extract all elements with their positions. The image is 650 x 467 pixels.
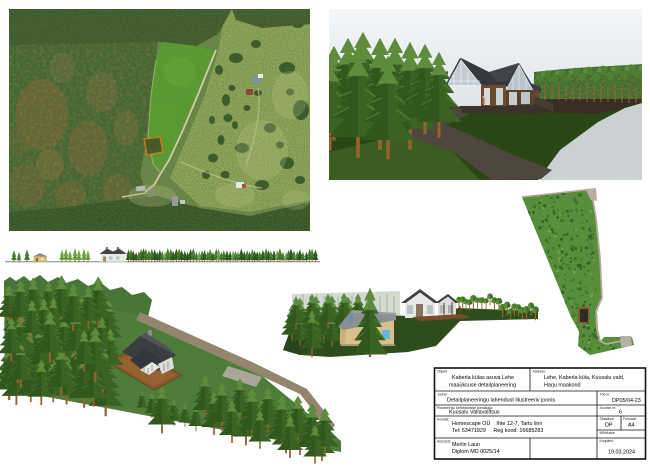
svg-text:Kuusalu Vallavalitsus: Kuusalu Vallavalitsus bbox=[449, 410, 500, 416]
svg-text:Tel: 53471829 Reg kood: 16: Tel: 53471829 Reg kood: 16685283 bbox=[452, 428, 543, 434]
svg-text:Harju maakond: Harju maakond bbox=[544, 383, 581, 389]
svg-text:DP: DP bbox=[605, 423, 613, 429]
svg-text:Mõõtkava:: Mõõtkava: bbox=[600, 431, 616, 435]
svg-text:Autor(id):: Autor(id): bbox=[437, 440, 451, 444]
svg-text:DP05/04-23: DP05/04-23 bbox=[612, 398, 641, 404]
svg-text:Joonis:: Joonis: bbox=[437, 393, 448, 397]
svg-text:Staadium:: Staadium: bbox=[600, 417, 615, 421]
svg-text:Kuupäev:: Kuupäev: bbox=[600, 439, 614, 443]
svg-text:Aadress:: Aadress: bbox=[533, 370, 546, 374]
svg-text:6: 6 bbox=[619, 410, 622, 416]
svg-text:Formaat:: Formaat: bbox=[623, 417, 637, 421]
svg-text:19.03.2024: 19.03.2024 bbox=[608, 450, 635, 456]
svg-text:Kaberla külas asuva Lehe: Kaberla külas asuva Lehe bbox=[452, 375, 514, 381]
svg-text:Detailplaneeringu lahendust il: Detailplaneeringu lahendust illustreeriv… bbox=[447, 398, 555, 404]
svg-text:A4: A4 bbox=[628, 423, 635, 429]
svg-text:Merlin Laun: Merlin Laun bbox=[452, 442, 480, 448]
svg-text:Töö nr:: Töö nr: bbox=[600, 393, 611, 397]
svg-text:Joonise nr:: Joonise nr: bbox=[600, 406, 617, 410]
svg-text:Diplom MD 0025/14: Diplom MD 0025/14 bbox=[452, 449, 500, 455]
svg-text:Homescape OÜ Ihte 12-7, Tar: Homescape OÜ Ihte 12-7, Tartu linn bbox=[452, 420, 542, 427]
svg-text:Objekt:: Objekt: bbox=[437, 370, 448, 374]
svg-text:Kontakt:: Kontakt: bbox=[437, 418, 449, 422]
svg-text:maaüksuse detailplaneering: maaüksuse detailplaneering bbox=[449, 383, 516, 389]
svg-text:Lehe, Kaberla küla, Kuusalu va: Lehe, Kaberla küla, Kuusalu vald, bbox=[544, 375, 625, 381]
